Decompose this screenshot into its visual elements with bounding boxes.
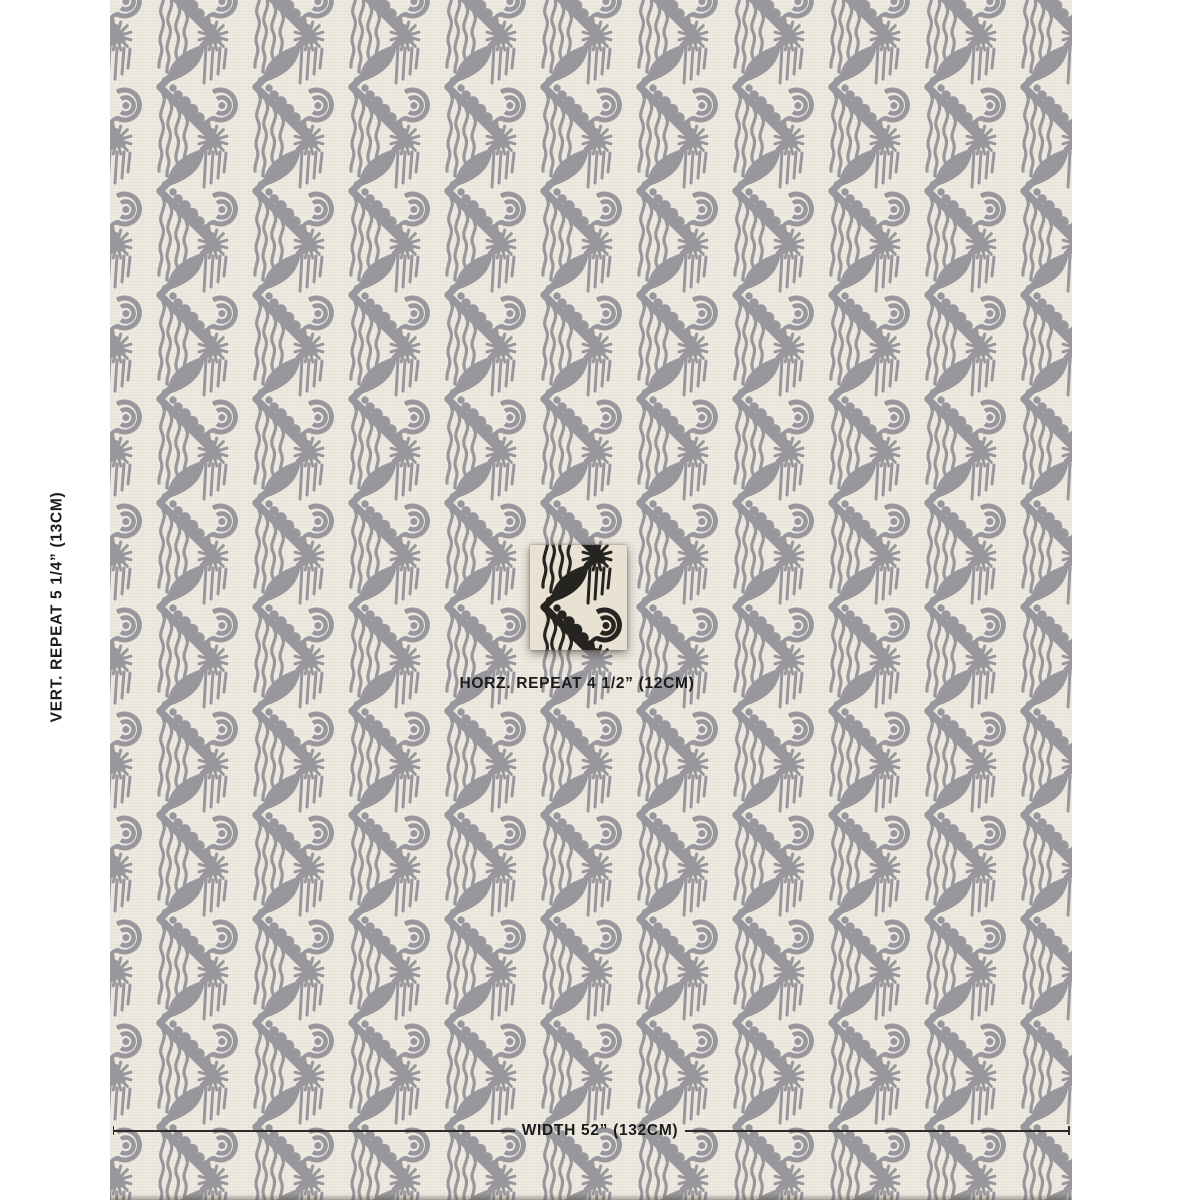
product-image-page: VERT. REPEAT 5 1/4” (13CM) HORZ. REPEAT …: [0, 0, 1200, 1200]
width-measure-tick-right: [1068, 1126, 1070, 1135]
repeat-highlight-svg: [530, 545, 627, 650]
width-measure-tick-left: [113, 1126, 115, 1135]
fabric-bottom-edge-shadow: [110, 1194, 1072, 1200]
horizontal-repeat-label: HORZ. REPEAT 4 1/2” (12CM): [427, 676, 727, 692]
width-label: WIDTH 52” (132CM): [450, 1123, 750, 1139]
vertical-repeat-label: VERT. REPEAT 5 1/4” (13CM): [49, 492, 65, 723]
repeat-highlight-swatch: [530, 545, 627, 650]
